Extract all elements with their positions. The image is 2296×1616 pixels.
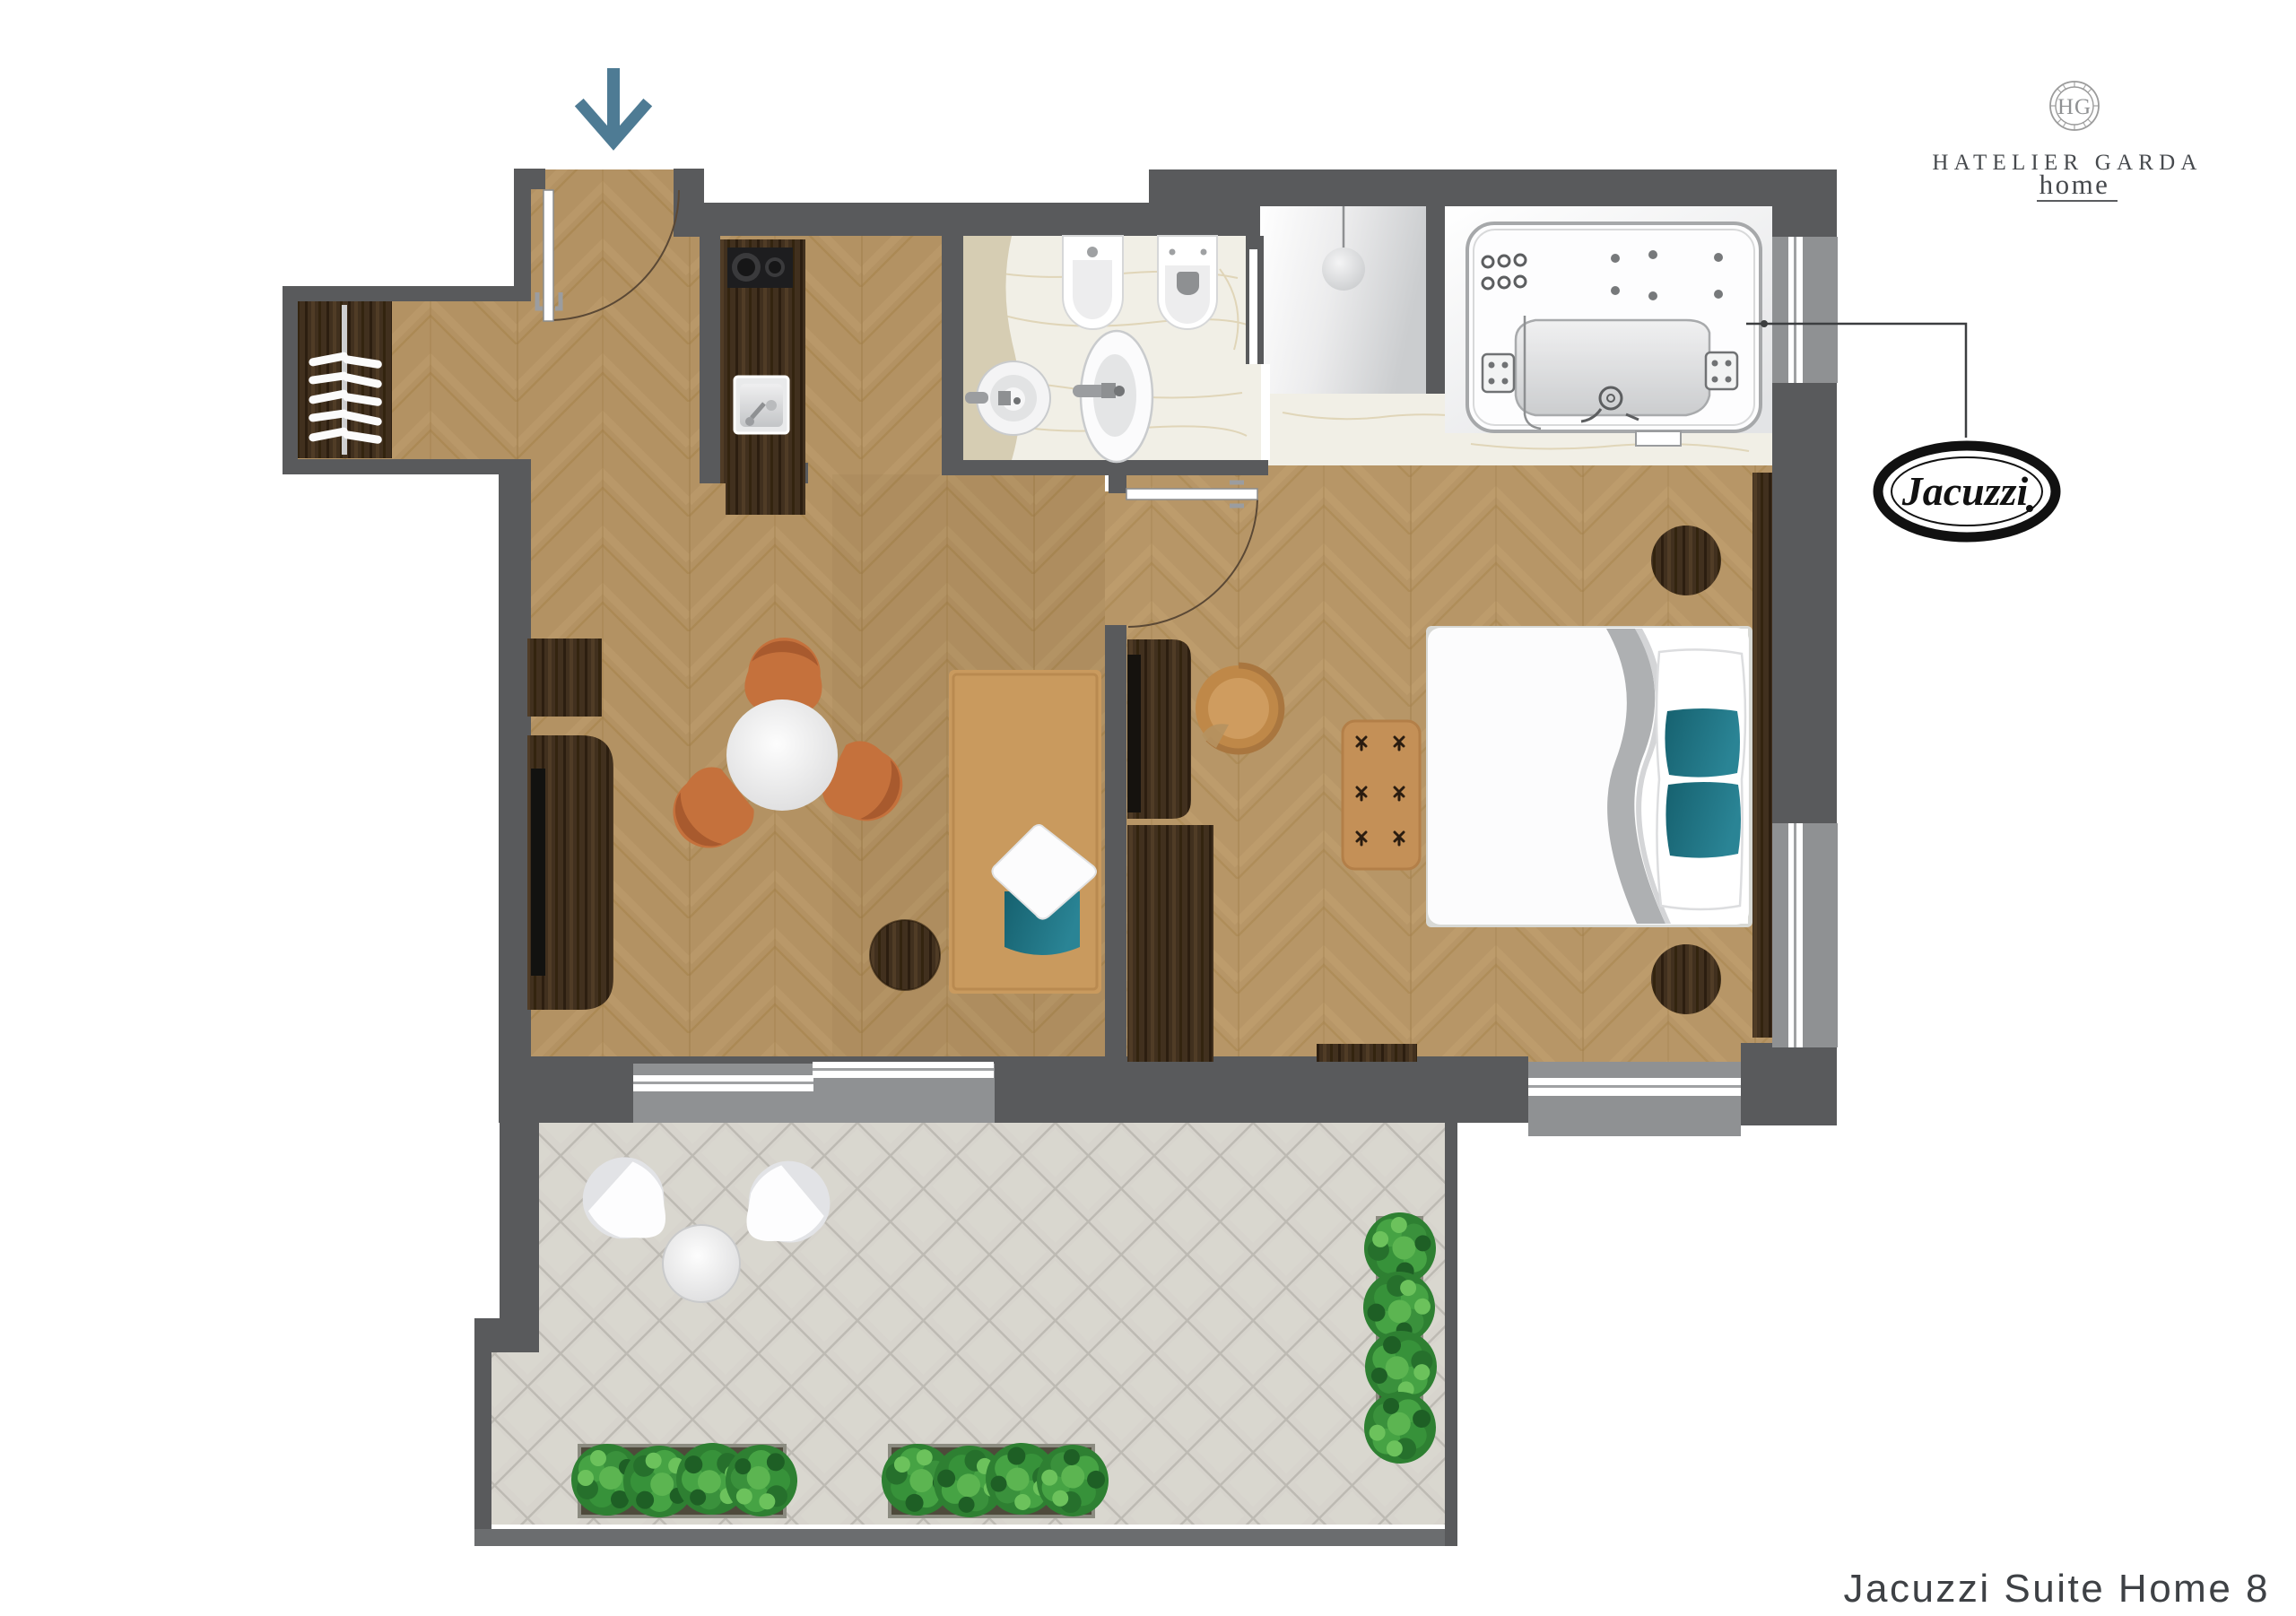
svg-text:Jacuzzi: Jacuzzi: [1901, 468, 2029, 514]
svg-text:HG: HG: [2057, 95, 2092, 119]
svg-text:Jacuzzi Suite Home 8: Jacuzzi Suite Home 8: [1843, 1567, 2270, 1611]
svg-text:home: home: [2039, 169, 2110, 200]
